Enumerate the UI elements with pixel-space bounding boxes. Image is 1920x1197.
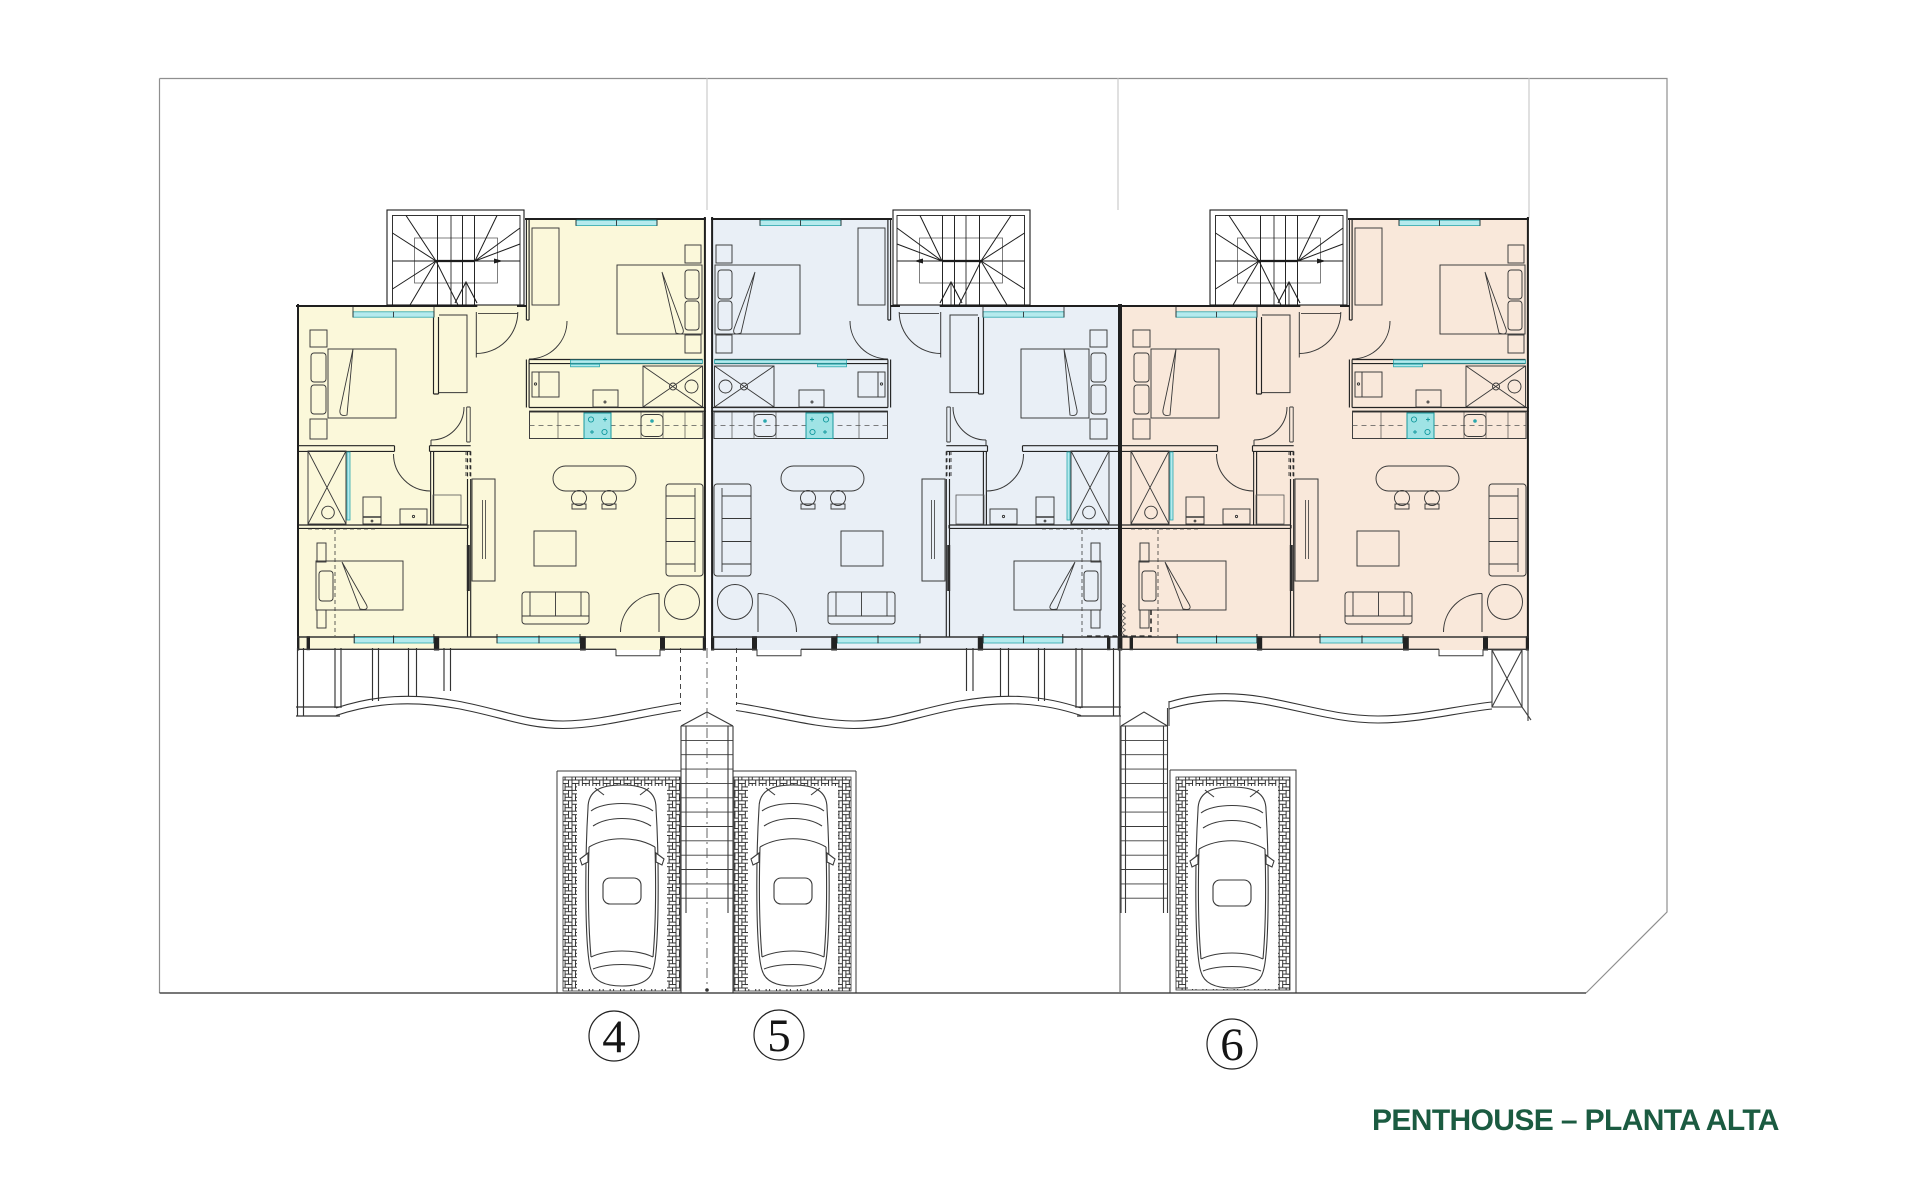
svg-text:4: 4 (602, 1011, 626, 1063)
svg-text:PENTHOUSE – PLANTA ALTA: PENTHOUSE – PLANTA ALTA (1372, 1104, 1779, 1137)
svg-text:5: 5 (767, 1010, 791, 1062)
svg-text:6: 6 (1220, 1019, 1244, 1071)
